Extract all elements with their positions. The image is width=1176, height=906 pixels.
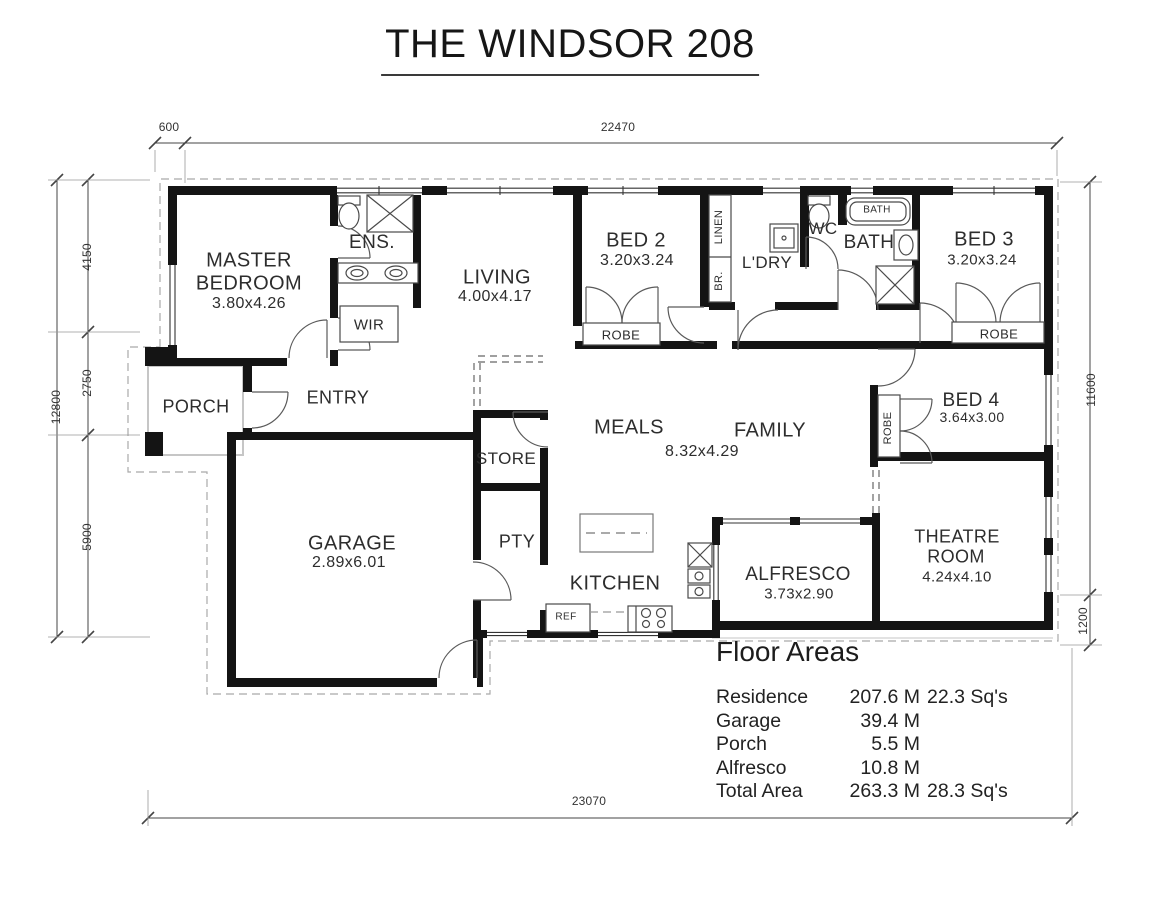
floor-area-row-alfresco: Alfresco 10.8 M bbox=[716, 757, 1008, 781]
dim-label-1200: 1200 bbox=[1076, 607, 1090, 635]
shower-icon bbox=[367, 195, 413, 232]
floor-area-metric: 5.5 M bbox=[844, 733, 920, 757]
room-label-robe-bed3: ROBE bbox=[980, 327, 1018, 342]
room-label-robe-bed4: ROBE bbox=[882, 412, 894, 445]
room-label-linen: LINEN bbox=[713, 210, 725, 244]
floor-area-metric: 10.8 M bbox=[844, 757, 920, 781]
room-label-pty: PTY bbox=[499, 532, 535, 553]
fixture-label-ref: REF bbox=[555, 612, 576, 623]
room-size-bed3: 3.20x3.24 bbox=[947, 252, 1017, 269]
room-label-garage: GARAGE bbox=[308, 533, 396, 556]
room-label-alfresco: ALFRESCO bbox=[745, 564, 851, 586]
room-label-store: STORE bbox=[476, 449, 536, 469]
bath-shower-icon bbox=[876, 266, 914, 304]
floor-area-label: Residence bbox=[716, 686, 844, 710]
dim-label-5900: 5900 bbox=[80, 523, 94, 551]
dim-label-2750: 2750 bbox=[80, 369, 94, 397]
floor-area-label: Total Area bbox=[716, 780, 844, 804]
laundry-trough-icon bbox=[770, 224, 798, 252]
dim-label-23070: 23070 bbox=[572, 794, 606, 808]
room-label-br: BR. bbox=[713, 271, 725, 291]
room-label-kitchen: KITCHEN bbox=[570, 573, 661, 596]
room-size-alfresco: 3.73x2.90 bbox=[764, 586, 834, 603]
floor-area-row-garage: Garage 39.4 M bbox=[716, 710, 1008, 734]
room-label-robe-bed2: ROBE bbox=[602, 328, 640, 343]
vanity-basin-icon bbox=[338, 263, 418, 283]
room-label-ens: ENS. bbox=[349, 232, 395, 254]
floorplan-page: THE WINDSOR 208 600 22470 12800 4150 275… bbox=[0, 0, 1176, 906]
room-label-porch: PORCH bbox=[162, 397, 229, 418]
room-label-master-line1: MASTER bbox=[206, 250, 292, 273]
dim-label-22470: 22470 bbox=[601, 120, 635, 134]
room-label-theatre-line1: THEATRE bbox=[914, 527, 999, 548]
cooktop-icon bbox=[628, 606, 672, 632]
room-size-bed2: 3.20x3.24 bbox=[600, 252, 674, 270]
floor-area-row-porch: Porch 5.5 M bbox=[716, 733, 1008, 757]
floor-area-extra: 28.3 Sq's bbox=[927, 780, 1008, 804]
room-label-bath: BATH bbox=[844, 232, 895, 254]
room-label-wir: WIR bbox=[354, 317, 384, 334]
room-size-living: 4.00x4.17 bbox=[458, 288, 532, 306]
room-label-bed2: BED 2 bbox=[606, 230, 666, 253]
floor-areas-heading: Floor Areas bbox=[716, 636, 859, 668]
toilet-icon bbox=[338, 196, 360, 229]
bath-vanity-icon bbox=[894, 230, 918, 260]
room-label-entry: ENTRY bbox=[307, 388, 370, 409]
floor-area-metric: 263.3 M bbox=[844, 780, 920, 804]
room-size-meals-family: 8.32x4.29 bbox=[665, 443, 739, 461]
page-title: THE WINDSOR 208 bbox=[381, 22, 759, 76]
dim-label-11600: 11600 bbox=[1084, 373, 1098, 406]
room-label-meals: MEALS bbox=[594, 417, 664, 440]
floor-area-extra: 22.3 Sq's bbox=[927, 686, 1008, 710]
dim-label-12800: 12800 bbox=[49, 390, 63, 424]
dim-label-600: 600 bbox=[159, 120, 180, 134]
room-size-master: 3.80x4.26 bbox=[212, 295, 286, 313]
room-label-wc: WC bbox=[808, 219, 837, 239]
room-label-living: LIVING bbox=[463, 267, 531, 290]
floor-areas-table: Residence 207.6 M 22.3 Sq's Garage 39.4 … bbox=[716, 686, 1008, 804]
floor-area-label: Garage bbox=[716, 710, 844, 734]
floor-area-metric: 39.4 M bbox=[844, 710, 920, 734]
room-label-family: FAMILY bbox=[734, 420, 806, 443]
island-bench bbox=[580, 514, 653, 552]
room-label-theatre-line2: ROOM bbox=[927, 547, 985, 568]
room-size-bed4: 3.64x3.00 bbox=[939, 409, 1004, 425]
room-label-bed3: BED 3 bbox=[954, 229, 1014, 252]
pantry-shelf bbox=[688, 543, 712, 567]
kitchen-sink-icon bbox=[688, 569, 710, 598]
floor-area-label: Alfresco bbox=[716, 757, 844, 781]
floor-area-row-total: Total Area 263.3 M 28.3 Sq's bbox=[716, 780, 1008, 804]
room-label-master-line2: BEDROOM bbox=[196, 273, 302, 296]
floor-area-label: Porch bbox=[716, 733, 844, 757]
room-size-garage: 2.89x6.01 bbox=[312, 554, 386, 572]
fixture-label-bathtub: BATH bbox=[863, 205, 891, 216]
floor-area-row-residence: Residence 207.6 M 22.3 Sq's bbox=[716, 686, 1008, 710]
floor-area-metric: 207.6 M bbox=[844, 686, 920, 710]
room-label-ldry: L'DRY bbox=[742, 253, 792, 273]
dim-label-4150: 4150 bbox=[80, 243, 94, 271]
room-size-theatre: 4.24x4.10 bbox=[922, 569, 992, 586]
